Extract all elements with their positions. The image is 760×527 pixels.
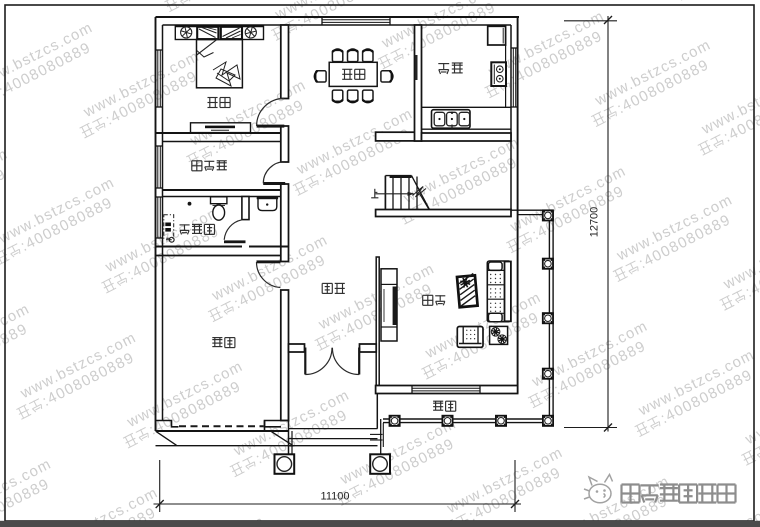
svg-text:12700: 12700: [589, 207, 601, 238]
svg-text:11100: 11100: [321, 491, 350, 503]
